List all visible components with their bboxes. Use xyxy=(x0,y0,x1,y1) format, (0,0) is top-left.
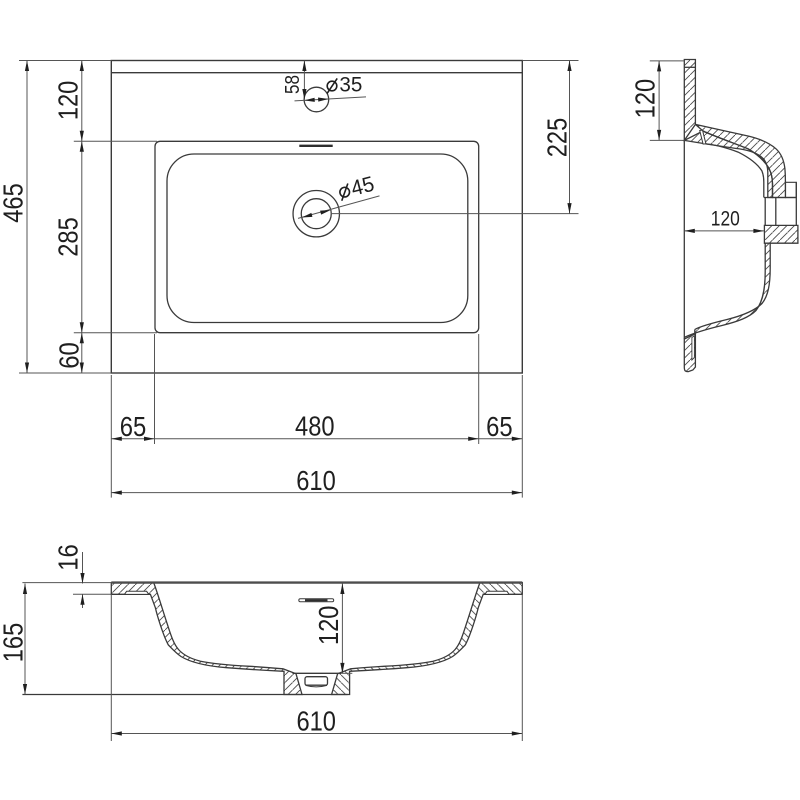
svg-text:480: 480 xyxy=(295,410,335,441)
svg-text:65: 65 xyxy=(486,411,513,442)
svg-text:610: 610 xyxy=(296,465,336,496)
svg-text:120: 120 xyxy=(313,606,344,646)
svg-text:35: 35 xyxy=(339,72,362,96)
svg-text:465: 465 xyxy=(0,183,29,223)
svg-text:60: 60 xyxy=(53,342,84,369)
svg-text:120: 120 xyxy=(52,81,83,121)
svg-text:285: 285 xyxy=(52,217,83,257)
svg-text:65: 65 xyxy=(120,411,147,442)
svg-text:120: 120 xyxy=(711,208,740,231)
svg-text:58: 58 xyxy=(282,75,304,94)
svg-text:225: 225 xyxy=(541,118,572,158)
svg-text:120: 120 xyxy=(630,79,661,119)
svg-text:16: 16 xyxy=(53,544,84,571)
svg-text:165: 165 xyxy=(0,623,28,663)
svg-text:610: 610 xyxy=(296,706,336,737)
